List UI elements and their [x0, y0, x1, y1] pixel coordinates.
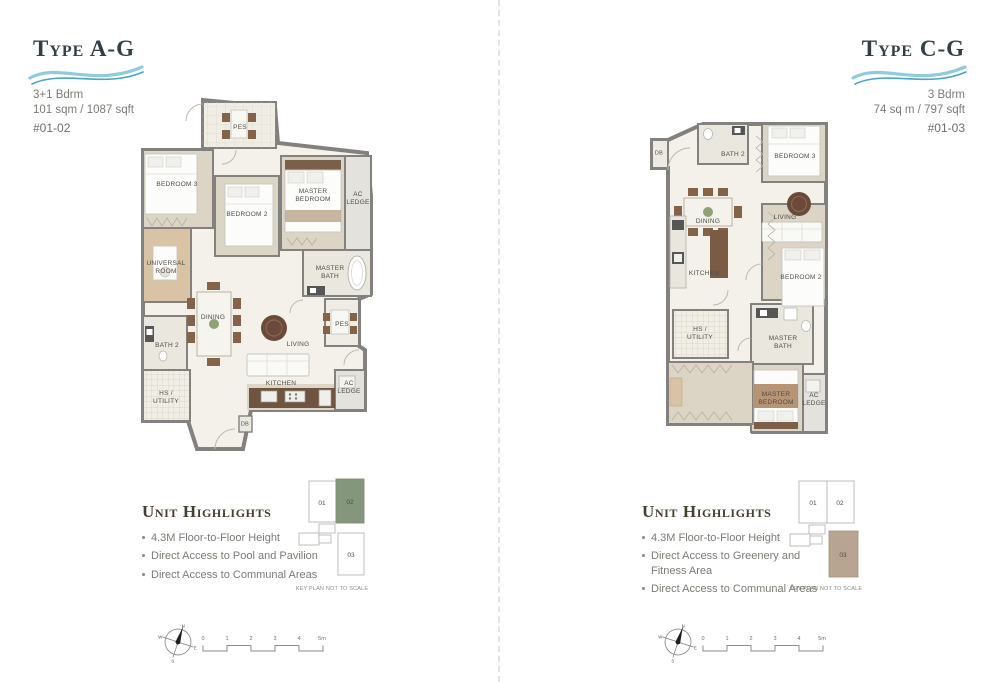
- room-label-bedroom2: BEDROOM 2: [226, 211, 267, 219]
- svg-text:2: 2: [749, 636, 752, 642]
- svg-text:4: 4: [297, 636, 300, 642]
- room-label-bath2: BATH 2: [721, 151, 745, 159]
- compass-n: N: [682, 624, 685, 629]
- room-label-master-bath: MASTER BATH: [769, 335, 798, 351]
- key-plan-caption: KEY PLAN NOT TO SCALE: [292, 586, 372, 592]
- unit-area: 74 sq m / 797 sqft: [874, 103, 965, 118]
- rug-icon: [261, 315, 287, 341]
- bullet-icon: [142, 536, 145, 539]
- scale-bar: 0 1 2 3 4 5m: [198, 632, 333, 658]
- svg-text:5m: 5m: [318, 636, 326, 642]
- room-label-bedroom3: BEDROOM 3: [774, 153, 815, 161]
- key-plan-unit-02: 02: [836, 500, 844, 507]
- svg-text:4: 4: [797, 636, 800, 642]
- room-label-pes-right: PES: [335, 321, 349, 329]
- compass-n: N: [182, 624, 185, 629]
- floor-plan-drawing: [135, 88, 395, 468]
- room-label-universal-room: UNIVERSAL ROOM: [146, 260, 185, 276]
- unit-type-title-left: Type A-G: [33, 36, 135, 62]
- key-plan-drawing: 01 02 03: [292, 476, 372, 578]
- wave-decoration-icon: [28, 62, 144, 88]
- key-plan-right: 01 02 03 KEY PLAN NOT TO SCALE: [786, 476, 866, 592]
- floor-plan-type-a-g: PES BEDROOM 3 BEDROOM 2 MASTER BEDROOM A…: [135, 88, 395, 468]
- key-plan-left: 01 02 03 KEY PLAN NOT TO SCALE: [292, 476, 372, 592]
- room-label-db: DB: [655, 151, 663, 158]
- unit-type-title-right: Type C-G: [862, 36, 965, 62]
- room-label-ac-ledge-2: AC LEDGE: [337, 380, 360, 396]
- compass-icon: N E S W: [155, 619, 201, 665]
- bedroom-count: 3+1 Bdrm: [33, 88, 134, 103]
- bullet-icon: [142, 573, 145, 576]
- unit-info-left: 3+1 Bdrm 101 sqm / 1087 sqft: [33, 88, 134, 118]
- cabinet-icon: [670, 378, 682, 406]
- compass-e: E: [194, 646, 197, 651]
- key-plan-unit-01: 01: [809, 500, 817, 507]
- rug-icon: [787, 192, 811, 216]
- key-plan-unit-03: 03: [839, 552, 847, 559]
- bullet-icon: [642, 587, 645, 590]
- key-plan-unit-01: 01: [318, 500, 326, 507]
- unit-number: #01-02: [33, 121, 70, 135]
- compass-icon: N E S W: [655, 619, 701, 665]
- unit-area: 101 sqm / 1087 sqft: [33, 103, 134, 118]
- wave-decoration-icon: [851, 62, 967, 88]
- svg-text:1: 1: [225, 636, 228, 642]
- unit-info-right: 3 Bdrm 74 sq m / 797 sqft: [874, 88, 965, 118]
- room-label-db: DB: [241, 422, 249, 429]
- room-label-dining: DINING: [696, 218, 720, 226]
- room-label-hs-utility: HS / UTILITY: [153, 390, 179, 406]
- room-label-pes: PES: [233, 124, 247, 132]
- svg-text:0: 0: [701, 636, 704, 642]
- compass-s: S: [671, 659, 674, 664]
- ac-unit-icon: [806, 380, 820, 392]
- bullet-icon: [642, 536, 645, 539]
- page-divider: [498, 0, 500, 682]
- room-label-living: LIVING: [774, 214, 797, 222]
- key-plan-unit-02: 02: [346, 499, 354, 506]
- room-label-bath2: BATH 2: [155, 342, 179, 350]
- svg-text:3: 3: [273, 636, 276, 642]
- room-label-bedroom2: BEDROOM 2: [780, 274, 821, 282]
- key-plan-unit-03: 03: [347, 552, 355, 559]
- bedroom-count: 3 Bdrm: [874, 88, 965, 103]
- svg-text:2: 2: [249, 636, 252, 642]
- svg-text:0: 0: [201, 636, 204, 642]
- room-label-master-bath: MASTER BATH: [316, 265, 345, 281]
- bed-icon-bedroom3: [768, 126, 820, 176]
- kitchen-counter-icon: [249, 388, 335, 408]
- room-label-kitchen: KITCHEN: [689, 270, 719, 278]
- compass-e: E: [694, 646, 697, 651]
- bullet-icon: [142, 554, 145, 557]
- scale-bar: 0 1 2 3 4 5m: [698, 632, 833, 658]
- svg-text:3: 3: [773, 636, 776, 642]
- floor-plan-type-c-g: DB BATH 2 BEDROOM 3 DINING LIVING KITCHE…: [648, 112, 848, 449]
- room-label-kitchen: KITCHEN: [266, 380, 296, 388]
- compass-s: S: [171, 659, 174, 664]
- key-plan-drawing: 01 02 03: [786, 476, 866, 578]
- room-label-hs-utility: HS / UTILITY: [687, 326, 713, 342]
- svg-text:5m: 5m: [818, 636, 826, 642]
- floorplan-brochure-page: Type A-G 3+1 Bdrm 101 sqm / 1087 sqft #0…: [0, 0, 1000, 682]
- room-label-living: LIVING: [287, 341, 310, 349]
- room-label-dining: DINING: [201, 314, 225, 322]
- room-label-ac-ledge: AC LEDGE: [802, 392, 825, 408]
- room-label-master-bedroom: MASTER BEDROOM: [295, 188, 330, 204]
- room-label-ac-ledge-1: AC LEDGE: [346, 191, 369, 207]
- svg-text:1: 1: [725, 636, 728, 642]
- sofa-icon: [247, 354, 309, 376]
- room-label-bedroom3: BEDROOM 3: [156, 181, 197, 189]
- unit-number: #01-03: [928, 121, 965, 135]
- room-label-master-bedroom: MASTER BEDROOM: [758, 391, 793, 407]
- bullet-icon: [642, 554, 645, 557]
- key-plan-caption: KEY PLAN NOT TO SCALE: [786, 586, 866, 592]
